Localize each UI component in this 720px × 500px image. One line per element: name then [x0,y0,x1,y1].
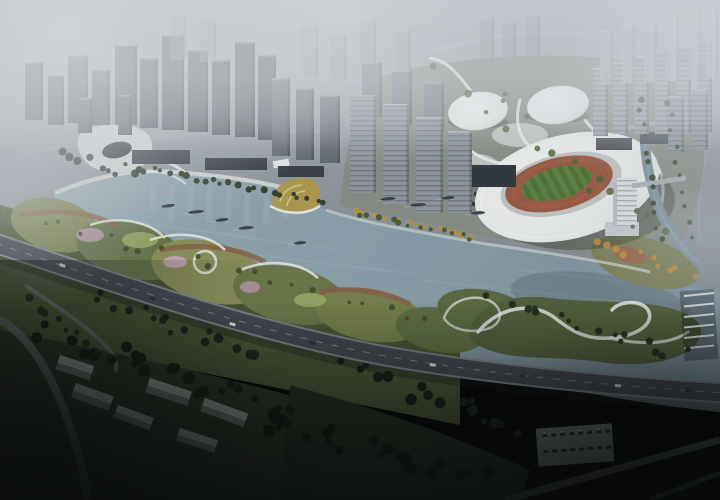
rendering-canvas [0,0,720,500]
aerial-rendering-image [0,0,720,500]
color-grade-tint [0,0,720,500]
